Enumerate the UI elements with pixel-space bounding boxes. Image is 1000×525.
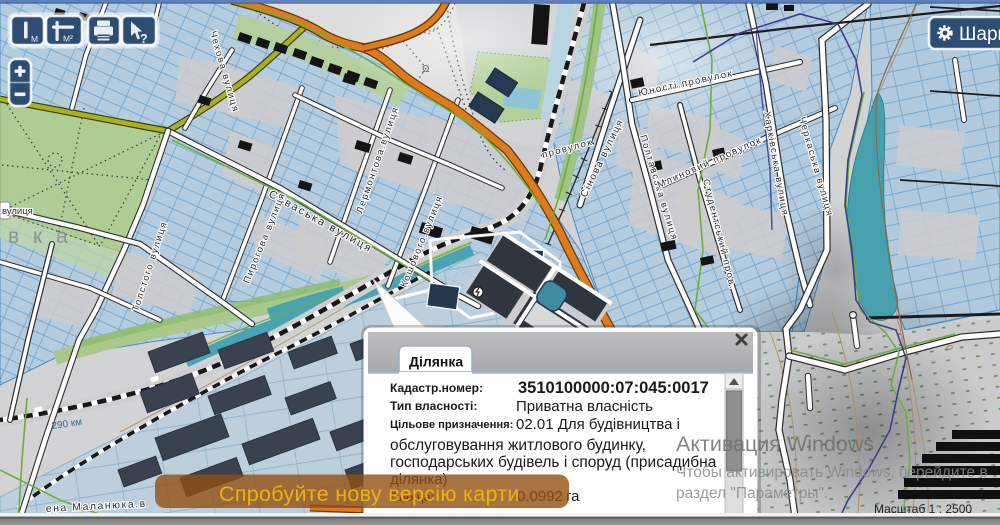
svg-text:Активация Windows: Активация Windows bbox=[676, 432, 874, 456]
svg-text:Кадастр.номер:: Кадастр.номер: bbox=[390, 381, 483, 395]
svg-text:вулиця: вулиця bbox=[2, 206, 33, 217]
svg-text:3510100000:07:045:0017: 3510100000:07:045:0017 bbox=[518, 379, 709, 397]
svg-text:Ділянка: Ділянка bbox=[409, 354, 463, 370]
svg-text:обслуговування житлового будин: обслуговування житлового будинку, bbox=[390, 437, 646, 454]
svg-text:в к а: в к а bbox=[8, 225, 72, 248]
svg-text:02.01 Для будівництва і: 02.01 Для будівництва і bbox=[516, 416, 680, 433]
svg-text:Шари: Шари bbox=[959, 24, 1000, 45]
svg-text:М²: М² bbox=[63, 34, 73, 44]
svg-text:М: М bbox=[31, 34, 38, 44]
svg-text:?: ? bbox=[140, 32, 148, 46]
svg-text:господарських будівель і спору: господарських будівель і споруд (присади… bbox=[390, 454, 717, 471]
svg-text:Чтобы активировать Windows, пе: Чтобы активировать Windows, перейдите в bbox=[676, 464, 988, 481]
svg-text:Цільове призначення:: Цільове призначення: bbox=[390, 419, 513, 431]
svg-text:Приватна власність: Приватна власність bbox=[516, 398, 653, 415]
svg-text:раздел "Параметры".: раздел "Параметры". bbox=[676, 485, 828, 502]
svg-text:Тип власності:: Тип власності: bbox=[390, 399, 477, 413]
svg-text:Спробуйте нову версію карти: Спробуйте нову версію карти bbox=[219, 482, 520, 506]
